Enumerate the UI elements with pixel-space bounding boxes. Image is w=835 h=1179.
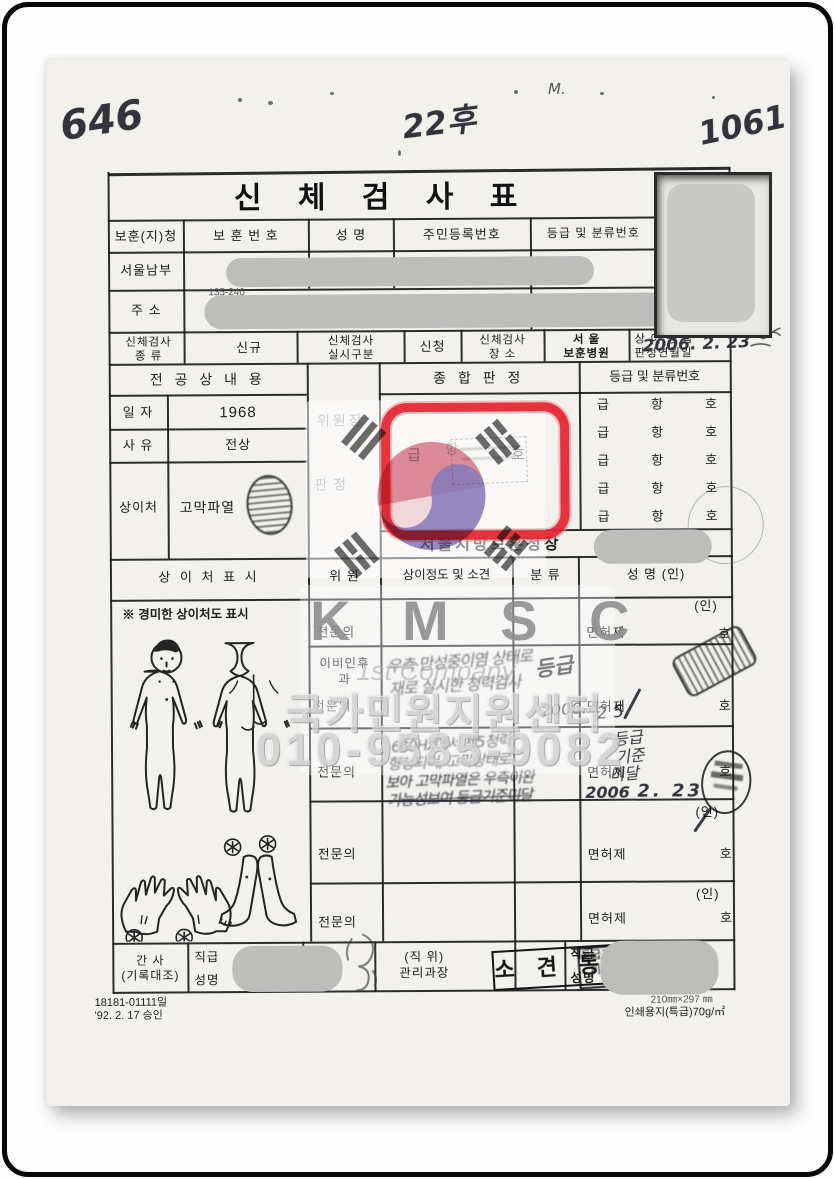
photo-box (654, 172, 772, 338)
clerk-label: 간 사 (기록대조) (112, 953, 188, 983)
v-line (579, 361, 582, 529)
grade-row-geup: 급 (597, 453, 610, 468)
exam-place-v1: 서 울 (573, 334, 600, 346)
clerk-l1: 간 사 (136, 954, 165, 968)
in-mark-5: (인) (696, 886, 720, 901)
exam-place-label: 신체검사 장 소 (461, 333, 543, 362)
merit-date-label: 일 자 (109, 405, 167, 421)
h-line (109, 428, 307, 431)
merit-date-value: 1968 (169, 404, 307, 423)
header-name-col: 성 명 (309, 227, 393, 243)
table-border-top (108, 167, 731, 177)
redaction-clerk (232, 945, 342, 992)
screenshot-canvas: 646 22후 1061 M. (0, 0, 835, 1179)
header-vetno-col: 보 훈 번 호 (184, 228, 308, 244)
position-label: (직 위) 관리과장 (376, 950, 472, 982)
exam-method-l1: 신체검사 (328, 335, 374, 347)
spec-note-line4: 가능성보여 등급기준미달 (387, 784, 532, 811)
mild-wound-note: ※ 경미한 상이처도 표시 (122, 607, 249, 623)
v-line (628, 329, 630, 361)
header-residentno-col: 주민등록번호 (394, 226, 530, 242)
clerk-name-label: 성명 (194, 973, 219, 988)
exam-place-l1: 신체검사 (479, 334, 525, 346)
grade-row-hang: 항 (652, 509, 665, 524)
grade-row-geup: 급 (597, 481, 610, 496)
exam-place-l2: 장 소 (489, 349, 516, 361)
merit-cause-label: 사 유 (109, 438, 167, 454)
grade-row-hang: 항 (651, 481, 664, 496)
form-title: 신 체 검 사 표 (128, 179, 638, 218)
h-line (108, 287, 656, 292)
grade-row-geup: 급 (597, 397, 610, 412)
grade-row-ho: 호 (705, 424, 718, 439)
header-grade-col: 등급 및 분류번호 (531, 226, 656, 241)
committee-header-name: 성 명 (인) (579, 566, 733, 582)
exam-method-label: 신체검사 실시구분 (298, 334, 403, 363)
hand-slash (623, 688, 641, 719)
clerk-l2: (기록대조) (121, 968, 179, 982)
exam-kind-label: 신체검사 종 류 (109, 335, 189, 364)
footer-size: 210㎜×297 ㎜ (651, 994, 713, 1006)
grade-row-hang: 항 (651, 425, 664, 440)
office-value: 서울남부 (108, 262, 184, 278)
in-mark-1: (인) (694, 598, 718, 613)
grade-row-hang: 항 (651, 453, 664, 468)
watermark-phone: 010-9585-9082 (256, 724, 626, 776)
grade-row-hang: 항 (651, 397, 664, 412)
ho-label-2: 호 (719, 698, 732, 713)
redaction-id-row (226, 256, 594, 287)
officer-name-label: 성명 (570, 971, 595, 986)
ho-label-4: 호 (720, 846, 733, 861)
wound-seal-stamp (244, 473, 295, 537)
committee-header-class: 분 류 (513, 567, 578, 583)
watermark-kmsc: K M S C (310, 588, 648, 653)
redaction-signer-name (594, 529, 712, 564)
in-mark-4: (인) (695, 804, 719, 819)
korean-flag-watermark (327, 405, 534, 578)
h-line (109, 394, 307, 397)
ho-label-5: 호 (720, 910, 733, 925)
exam-place-v2: 보훈병원 (563, 348, 609, 360)
grade-row-ho: 호 (705, 396, 718, 411)
body-diagram (110, 629, 310, 942)
spec-date: 2. 23 (637, 780, 703, 801)
h-line (379, 391, 732, 395)
merit-wound-label: 상이처 (110, 500, 168, 516)
rotated-name-seal (670, 623, 760, 699)
specialist-label-4: 전문의 (318, 846, 357, 862)
redaction-officer (600, 940, 718, 995)
grade-row-ho: 호 (705, 452, 718, 467)
h-line (108, 249, 656, 254)
pos-l2: 관리과장 (399, 965, 449, 979)
judgement-header: 종 합 판 정 (379, 369, 579, 387)
exam-kind-l2: 종 류 (135, 351, 162, 363)
committee-header-opinion: 상이정도 및 소견 (381, 567, 512, 583)
clerk-rank-label: 직급 (194, 950, 219, 965)
exam-method-l2: 실시구분 (328, 350, 374, 362)
merit-cause-value: 전상 (169, 437, 307, 453)
officer-rank-label: 직급 (570, 947, 595, 962)
exam-kind-value: 신규 (197, 340, 302, 356)
footer-paper: 인쇄용지(특급)70g/㎡ (625, 1006, 726, 1020)
exam-kind-l1: 신체검사 (125, 337, 171, 349)
h-line (109, 461, 307, 464)
exam-place-value: 서 울 보훈병원 (544, 333, 628, 362)
footer-approved: '92. 2. 17 승인 (95, 1010, 163, 1023)
grade-row-geup: 급 (598, 509, 611, 524)
exam-method-value: 신청 (405, 339, 461, 355)
address-label: 주 소 (108, 302, 184, 318)
committee-header-wound: 상 이 처 표 시 (110, 569, 308, 586)
pos-l1: (직 위) (404, 950, 444, 964)
grade-row-geup: 급 (597, 425, 610, 440)
merit-wound-value: 고막파열 (180, 499, 236, 516)
merit-header: 전 공 상 내 용 (109, 371, 307, 389)
h-line (108, 217, 656, 222)
footer-form-no: 18181-01111일 (95, 997, 168, 1010)
license-label-5: 면허제 (588, 911, 627, 927)
redaction-photo (667, 184, 755, 322)
license-label-4: 면허제 (588, 847, 627, 863)
h-line (310, 880, 735, 885)
grade-header: 등급 및 분류번호 (580, 368, 730, 384)
specialist-label-5: 전문의 (318, 914, 357, 930)
committee-header-member: 위 원 (309, 568, 380, 584)
header-office-col: 보훈(지)청 (108, 228, 184, 244)
spec-year: 2006 (585, 783, 630, 802)
